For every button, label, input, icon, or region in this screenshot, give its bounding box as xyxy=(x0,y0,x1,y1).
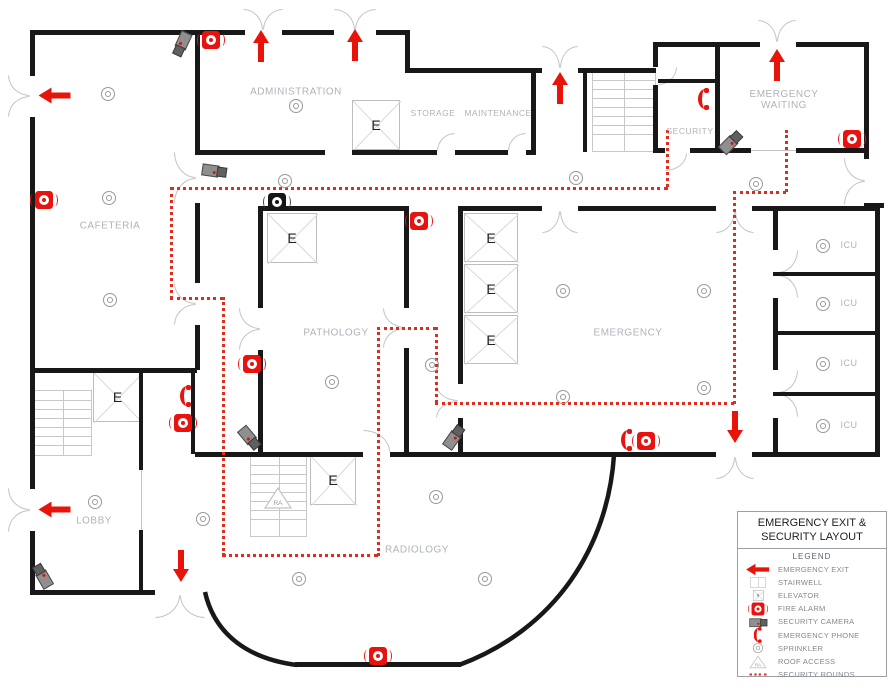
door-swing-arc xyxy=(735,457,754,479)
wall xyxy=(30,117,35,489)
stairwell xyxy=(33,390,92,456)
emergency-exit-arrow-icon xyxy=(769,49,785,82)
sprinkler-icon xyxy=(697,284,711,298)
emergency-exit-arrow-icon xyxy=(727,410,743,443)
sprinkler-icon xyxy=(816,357,830,371)
wall xyxy=(773,272,877,276)
wall xyxy=(578,206,716,211)
wall xyxy=(690,148,717,153)
alarm-wave xyxy=(764,604,768,613)
fire-alarm-icon xyxy=(202,31,220,49)
elevator-label: E xyxy=(465,316,517,363)
sprinkler-core xyxy=(701,288,707,294)
room-label-maintenance: MAINTENANCE xyxy=(464,108,531,118)
wall xyxy=(796,42,869,47)
wall xyxy=(455,150,508,155)
elevator: E xyxy=(464,264,518,313)
wall xyxy=(195,30,200,152)
arrow-shaft xyxy=(51,93,71,99)
door-swing-arc xyxy=(243,9,263,30)
security-rounds-icon xyxy=(744,674,773,676)
sprinkler-core xyxy=(560,288,566,294)
phone-ear xyxy=(758,627,762,631)
door-swing-arc xyxy=(355,9,376,30)
security-camera-icon xyxy=(744,616,773,628)
door-swing-arc xyxy=(735,211,754,233)
door-swing-arc xyxy=(844,181,865,205)
emergency-exit-arrow-icon xyxy=(552,72,568,105)
wall xyxy=(258,206,263,308)
wall xyxy=(773,206,880,211)
sprinkler-icon xyxy=(289,99,303,113)
alarm-wave xyxy=(219,34,225,46)
phone-ear xyxy=(186,385,191,390)
sprinkler-icon xyxy=(753,643,763,653)
room-label-storage: STORAGE xyxy=(411,108,456,118)
elevator: E xyxy=(310,455,356,505)
alarm-dot xyxy=(850,137,854,141)
alarm-dot xyxy=(250,362,254,366)
elevator-label: E xyxy=(465,214,517,261)
emergency-exit-arrow-icon xyxy=(39,502,72,518)
sprinkler-icon xyxy=(478,572,492,586)
roof-access-icon: RA xyxy=(744,654,773,668)
door-swing-arc xyxy=(778,250,798,273)
alarm-wave xyxy=(386,650,392,662)
stairwell-icon xyxy=(744,577,773,588)
stairwell xyxy=(592,70,656,152)
fire-alarm-icon xyxy=(752,602,765,615)
security-rounds-segment xyxy=(170,187,173,299)
emergency-exit-arrow-icon xyxy=(173,549,189,582)
alarm-wave xyxy=(238,358,244,370)
wall xyxy=(458,206,463,384)
security-camera-icon xyxy=(200,160,228,179)
door-swing-arc xyxy=(174,152,196,178)
svg-text:RA: RA xyxy=(273,500,283,507)
door-swing-arc xyxy=(174,283,196,304)
security-rounds-segment xyxy=(170,297,223,300)
wall xyxy=(653,148,665,153)
roof-access-icon: RA xyxy=(263,486,293,510)
security-rounds-segment xyxy=(170,187,668,190)
door-swing-arc xyxy=(560,46,578,68)
camera-record-dot xyxy=(757,623,759,625)
sprinkler-core xyxy=(701,385,707,391)
fire-alarm-icon xyxy=(369,647,387,665)
door-swing-arc xyxy=(180,595,205,618)
wall xyxy=(191,368,195,454)
wall xyxy=(773,331,877,335)
wall xyxy=(653,42,658,67)
arrow-shaft xyxy=(51,507,71,513)
sprinkler-core xyxy=(329,379,335,385)
wall xyxy=(30,368,197,373)
alarm-wave xyxy=(654,435,660,447)
alarm-dot xyxy=(644,439,648,443)
elevator-label: x xyxy=(753,591,762,600)
sprinkler-icon xyxy=(429,490,443,504)
room-label-emergency: EMERGENCY xyxy=(594,328,663,339)
wall xyxy=(773,392,877,396)
alarm-wave xyxy=(285,196,291,208)
sprinkler-core xyxy=(820,423,826,429)
door-swing-arc xyxy=(174,304,196,325)
door-swing-arc xyxy=(778,370,798,393)
alarm-wave xyxy=(427,215,433,227)
alarm-dot xyxy=(42,198,46,202)
alarm-wave xyxy=(191,417,197,429)
emergency-phone-icon xyxy=(744,627,773,643)
sprinkler-core xyxy=(293,103,299,109)
wall xyxy=(752,452,880,457)
wall xyxy=(195,203,200,283)
wall xyxy=(282,30,334,35)
elevator-label: E xyxy=(353,101,399,149)
alarm-dot xyxy=(757,607,760,610)
sprinkler-core xyxy=(296,576,302,582)
door-swing-arc xyxy=(8,75,30,96)
elevator-label: E xyxy=(94,373,141,421)
sprinkler-core xyxy=(433,494,439,500)
wall xyxy=(531,68,536,153)
door-swing-arc xyxy=(560,211,578,233)
alarm-wave xyxy=(748,604,752,613)
arrow-shaft xyxy=(258,42,264,62)
wall xyxy=(526,150,536,155)
sprinkler-icon xyxy=(569,171,583,185)
legend-item: EMERGENCY EXIT xyxy=(738,563,886,576)
fire-alarm-icon xyxy=(637,432,655,450)
sprinkler-icon xyxy=(556,284,570,298)
elevator: E xyxy=(93,372,142,422)
wall xyxy=(352,150,437,155)
sprinkler-icon xyxy=(88,495,102,509)
legend-item: SPRINKLER xyxy=(738,642,886,655)
door-swing-arc xyxy=(155,595,180,618)
alarm-dot xyxy=(209,38,213,42)
legend-item: xELEVATOR xyxy=(738,589,886,602)
arrow-shaft xyxy=(352,41,358,61)
sprinkler-icon xyxy=(749,177,763,191)
sprinkler-icon xyxy=(278,174,292,188)
door-swing-arc xyxy=(8,488,30,510)
wall xyxy=(405,30,410,72)
sprinkler-icon xyxy=(425,358,439,372)
alarm-wave xyxy=(263,196,269,208)
security-rounds-segment xyxy=(377,327,380,556)
door-swing-arc xyxy=(542,46,560,68)
legend-title-line1: EMERGENCY EXIT & xyxy=(740,516,884,530)
sprinkler-icon xyxy=(816,419,830,433)
door-swing-arc xyxy=(8,510,30,532)
sprinkler-icon xyxy=(744,643,773,653)
door-swing-arc xyxy=(758,20,777,42)
wall xyxy=(531,68,542,73)
security-camera-icon xyxy=(749,616,768,628)
phone-ear xyxy=(704,88,709,93)
emergency-exit-arrow-icon xyxy=(347,29,363,62)
door-swing-arc xyxy=(778,394,798,417)
fire-alarm-icon xyxy=(268,193,286,211)
sprinkler-core xyxy=(106,195,112,201)
alarm-dot xyxy=(275,200,279,204)
wall xyxy=(405,68,535,73)
sprinkler-icon xyxy=(102,191,116,205)
alarm-wave xyxy=(52,194,58,206)
legend-item-label: STAIRWELL xyxy=(778,578,823,587)
door-swing-arc xyxy=(263,9,283,30)
door-swing-arc xyxy=(383,308,405,328)
door-swing-arc xyxy=(778,275,798,298)
alarm-dot xyxy=(181,421,185,425)
door-swing-arc xyxy=(8,96,30,117)
alarm-wave xyxy=(364,650,370,662)
wall xyxy=(195,452,363,457)
security-rounds-swatch xyxy=(749,674,766,676)
security-rounds-segment xyxy=(222,554,378,557)
sprinkler-icon xyxy=(816,239,830,253)
wall xyxy=(30,590,155,595)
stair-rail xyxy=(63,391,64,455)
phone-mouth xyxy=(704,105,709,110)
elevator: E xyxy=(464,315,518,364)
alarm-wave xyxy=(30,194,36,206)
wall xyxy=(30,531,35,594)
wall xyxy=(653,85,658,152)
elevator: E xyxy=(352,100,400,150)
room-label-security: SECURITY xyxy=(667,126,714,136)
sprinkler-icon xyxy=(196,512,210,526)
emergency-phone-icon xyxy=(694,88,714,110)
phone-mouth xyxy=(627,446,632,451)
alarm-wave xyxy=(260,358,266,370)
alarm-wave xyxy=(860,133,866,145)
legend-item: EMERGENCY PHONE xyxy=(738,629,886,642)
door-swing-arc xyxy=(716,457,735,479)
phone-mouth xyxy=(186,402,191,407)
alarm-wave xyxy=(197,34,203,46)
sprinkler-core xyxy=(429,362,435,368)
alarm-dot xyxy=(417,219,421,223)
legend-item: SECURITY ROUNDS xyxy=(738,668,886,681)
legend-title: EMERGENCY EXIT & SECURITY LAYOUT xyxy=(738,512,886,549)
security-rounds-segment xyxy=(785,130,788,192)
stair-rail xyxy=(758,578,759,587)
security-rounds-segment xyxy=(435,402,734,405)
door-swing-arc xyxy=(334,9,355,30)
elevator-icon: x xyxy=(744,590,773,601)
alarm-wave xyxy=(838,133,844,145)
arrow-shaft xyxy=(732,411,738,431)
security-rounds-segment xyxy=(733,191,736,404)
sprinkler-icon xyxy=(292,572,306,586)
room-label-icu: ICU xyxy=(841,240,858,250)
stairwell xyxy=(750,577,766,588)
legend-panel: EMERGENCY EXIT & SECURITY LAYOUT LEGEND … xyxy=(737,511,887,677)
door-swing-arc xyxy=(239,329,260,350)
legend-item: FIRE ALARM xyxy=(738,602,886,615)
legend-rows: EMERGENCY EXITSTAIRWELLxELEVATORFIRE ALA… xyxy=(738,563,886,682)
emergency-exit-arrow-icon xyxy=(253,30,269,63)
wall xyxy=(195,325,200,370)
wall xyxy=(653,42,760,47)
wall xyxy=(715,42,720,152)
door-swing-arc xyxy=(436,384,458,401)
sprinkler-core xyxy=(92,499,98,505)
elevator: E xyxy=(464,213,518,262)
door-swing-arc xyxy=(437,133,455,151)
room-label-radiology: RADIOLOGY xyxy=(385,545,449,556)
arrow-head xyxy=(173,569,189,582)
room-label-cafeteria: CAFETERIA xyxy=(80,221,141,232)
alarm-dot xyxy=(376,654,380,658)
legend-item-label: SECURITY ROUNDS xyxy=(778,670,855,679)
wall xyxy=(458,206,542,211)
room-label-pathology: PATHOLOGY xyxy=(303,328,368,339)
legend-item-label: EMERGENCY PHONE xyxy=(778,631,859,640)
sprinkler-core xyxy=(753,181,759,187)
arrow-shaft xyxy=(774,61,780,81)
security-rounds-segment xyxy=(733,191,786,194)
sprinkler-icon xyxy=(101,87,115,101)
wall xyxy=(404,348,409,456)
security-rounds-segment xyxy=(377,327,436,330)
emergency-exit-arrow-icon xyxy=(746,563,770,575)
fire-alarm-icon xyxy=(243,355,261,373)
door-swing-arc xyxy=(239,308,260,329)
door-swing-arc xyxy=(383,328,405,348)
wall-opening xyxy=(751,150,796,151)
legend-title-line2: SECURITY LAYOUT xyxy=(740,530,884,544)
door-swing-arc xyxy=(174,178,196,203)
fire-alarm-icon xyxy=(410,212,428,230)
alarm-wave xyxy=(169,417,175,429)
fire-alarm-icon xyxy=(174,414,192,432)
stair-rail xyxy=(624,71,625,151)
sprinkler-icon xyxy=(556,390,570,404)
security-rounds-segment xyxy=(222,297,225,556)
sprinkler-core xyxy=(820,361,826,367)
fire-alarm-icon xyxy=(843,130,861,148)
wall xyxy=(139,530,143,594)
sprinkler-core xyxy=(820,243,826,249)
sprinkler-icon xyxy=(816,297,830,311)
fire-alarm-icon xyxy=(35,191,53,209)
emergency-phone-icon xyxy=(176,385,196,407)
sprinkler-core xyxy=(573,175,579,181)
elevator-label: E xyxy=(268,214,316,262)
emergency-phone-icon xyxy=(617,429,637,451)
wall xyxy=(390,452,716,457)
alarm-wave xyxy=(405,215,411,227)
legend-item-label: EMERGENCY EXIT xyxy=(778,565,849,574)
legend-item: STAIRWELL xyxy=(738,576,886,589)
room-label-emergency-waiting: EMERGENCY WAITING xyxy=(750,89,819,111)
wall xyxy=(658,79,717,83)
arrow-head xyxy=(727,430,743,443)
wall xyxy=(578,68,656,73)
fire-alarm-icon xyxy=(744,602,773,615)
sprinkler-core xyxy=(560,394,566,400)
svg-text:RA: RA xyxy=(755,662,761,667)
phone-ear xyxy=(627,429,632,434)
wall xyxy=(583,68,587,152)
elevator-label: E xyxy=(465,265,517,312)
sprinkler-core xyxy=(105,91,111,97)
wall xyxy=(773,206,778,250)
sprinkler-core xyxy=(107,297,113,303)
legend-item-label: FIRE ALARM xyxy=(778,604,826,613)
arrow-shaft xyxy=(755,567,769,571)
sprinkler-icon xyxy=(325,375,339,389)
sprinkler-icon xyxy=(103,293,117,307)
legend-item-label: SECURITY CAMERA xyxy=(778,617,854,626)
sprinkler-core xyxy=(200,516,206,522)
room-label-administration: ADMINISTRATION xyxy=(250,87,342,98)
camera-lens xyxy=(760,619,767,626)
elevator: x xyxy=(753,590,764,601)
security-rounds-segment xyxy=(666,130,669,187)
door-swing-arc xyxy=(777,20,796,42)
wall xyxy=(30,30,35,76)
elevator-label: E xyxy=(311,456,355,504)
camera-lens xyxy=(216,166,227,177)
sprinkler-core xyxy=(755,646,759,650)
legend-item-label: ROOF ACCESS xyxy=(778,657,835,666)
wall xyxy=(139,368,143,470)
sprinkler-core xyxy=(282,178,288,184)
legend-item: RAROOF ACCESS xyxy=(738,655,886,668)
room-label-icu: ICU xyxy=(841,298,858,308)
emergency-phone-icon xyxy=(751,627,765,643)
sprinkler-icon xyxy=(697,381,711,395)
wall-opening xyxy=(141,470,142,530)
door-swing-arc xyxy=(844,158,865,181)
arrow-shaft xyxy=(557,84,563,104)
wall xyxy=(195,150,325,155)
sprinkler-core xyxy=(820,301,826,307)
room-label-icu: ICU xyxy=(841,420,858,430)
arrow-shaft xyxy=(178,550,184,570)
elevator: E xyxy=(267,213,317,263)
legend-item-label: ELEVATOR xyxy=(778,591,819,600)
room-label-icu: ICU xyxy=(841,358,858,368)
door-swing-arc xyxy=(508,133,526,151)
emergency-exit-arrow-icon xyxy=(39,88,72,104)
legend-item-label: SPRINKLER xyxy=(778,644,823,653)
sprinkler-core xyxy=(482,576,488,582)
wall xyxy=(796,148,869,153)
wall xyxy=(773,418,778,457)
door-swing-arc xyxy=(542,211,560,233)
room-label-lobby: LOBBY xyxy=(76,516,112,527)
